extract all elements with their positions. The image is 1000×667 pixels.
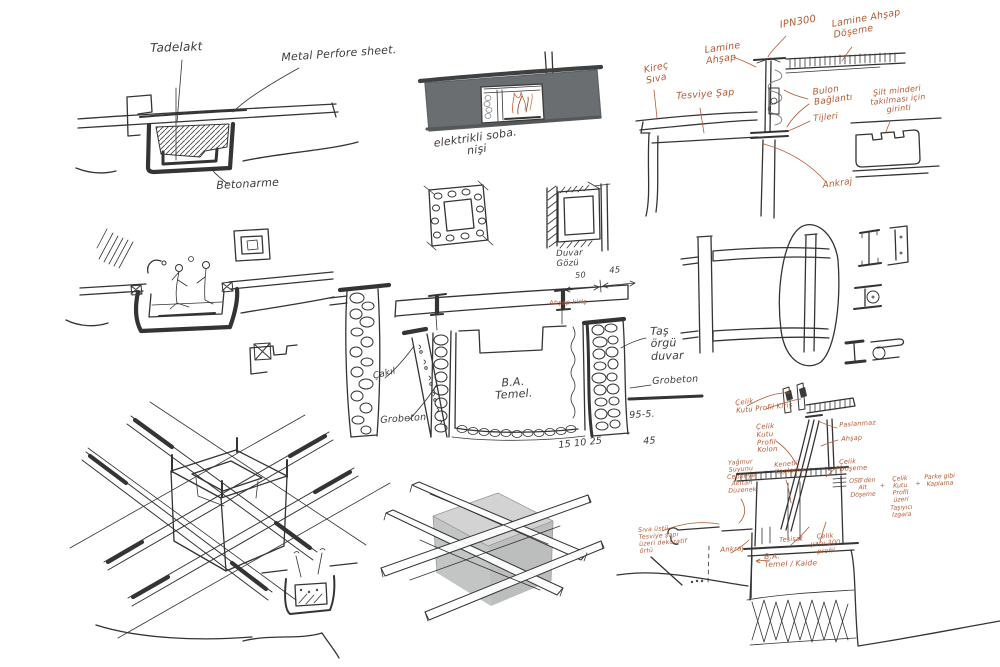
plus-sign: + [915,480,921,487]
steel-floor-detail-sketch [636,36,905,218]
cushion-recess-plan-sketch [851,118,941,177]
label-kutu-kolon: Çelik Kutu Profil Kolon [756,423,778,455]
label-ahsap-kiris: Ahşap kiriş [549,299,587,308]
label-ankraj-alt: Ankraj [720,545,744,554]
floor-buildup-formula: OSB'den Alt Döşeme + Çelik Kutu Profil ü… [849,472,957,520]
label-yagmur: Yağmur Suyunu Cepheye Akıtan Düzenek [726,459,757,496]
label-tas-orgu-duvar: Taş örgü duvar [650,325,684,363]
label-tadelakt: Tadelakt [150,40,203,55]
joist-plan-sketch [681,225,908,366]
sketch-sheet: Tadelakt Metal Perfore sheet. Betonarme … [0,0,1000,667]
hearth-section-sketch [76,60,358,184]
label-olcu-45: 45 [643,436,656,447]
label-siva-ustu: Sıva üstü Tesviye şapı üzeri dekoratif ö… [638,525,688,556]
label-kutu-tasiyici: Çelik Kutu Profil üzeri Taşıyıcı Izgara [889,475,914,519]
beam-grid-isometric-sketch [381,482,604,621]
label-osb: OSB'den Alt Döşeme [849,477,876,500]
label-dim-50: 50 [575,271,586,281]
label-ba-temel: B.A. Temel. [494,375,533,402]
roof-framing-isometric-sketch [70,402,390,639]
label-ahsap: Ahşap [841,435,863,444]
label-silt-minderi: Şilt minderi takılması için girinti [869,84,927,117]
sunken-seating-section-sketch [66,229,334,374]
plus-sign: + [880,482,886,489]
label-dim-45: 45 [609,266,621,276]
label-kenetli: Kenetli Kaplama [774,459,805,476]
label-duvar-gozu: Duvar Gözü [556,249,583,269]
label-olcu-95-5: 95-5. [629,410,655,422]
window-details-sketch [424,181,610,251]
label-parke: Parke gibi Kaplama [924,472,955,488]
fireplace-elevation-sketch [420,52,601,131]
label-ba-kaide: B.A. Temel / Kaide [764,551,817,570]
label-celik-doseme: Çelik Döşeme [839,458,868,474]
basin-detail-sketch [243,549,357,659]
